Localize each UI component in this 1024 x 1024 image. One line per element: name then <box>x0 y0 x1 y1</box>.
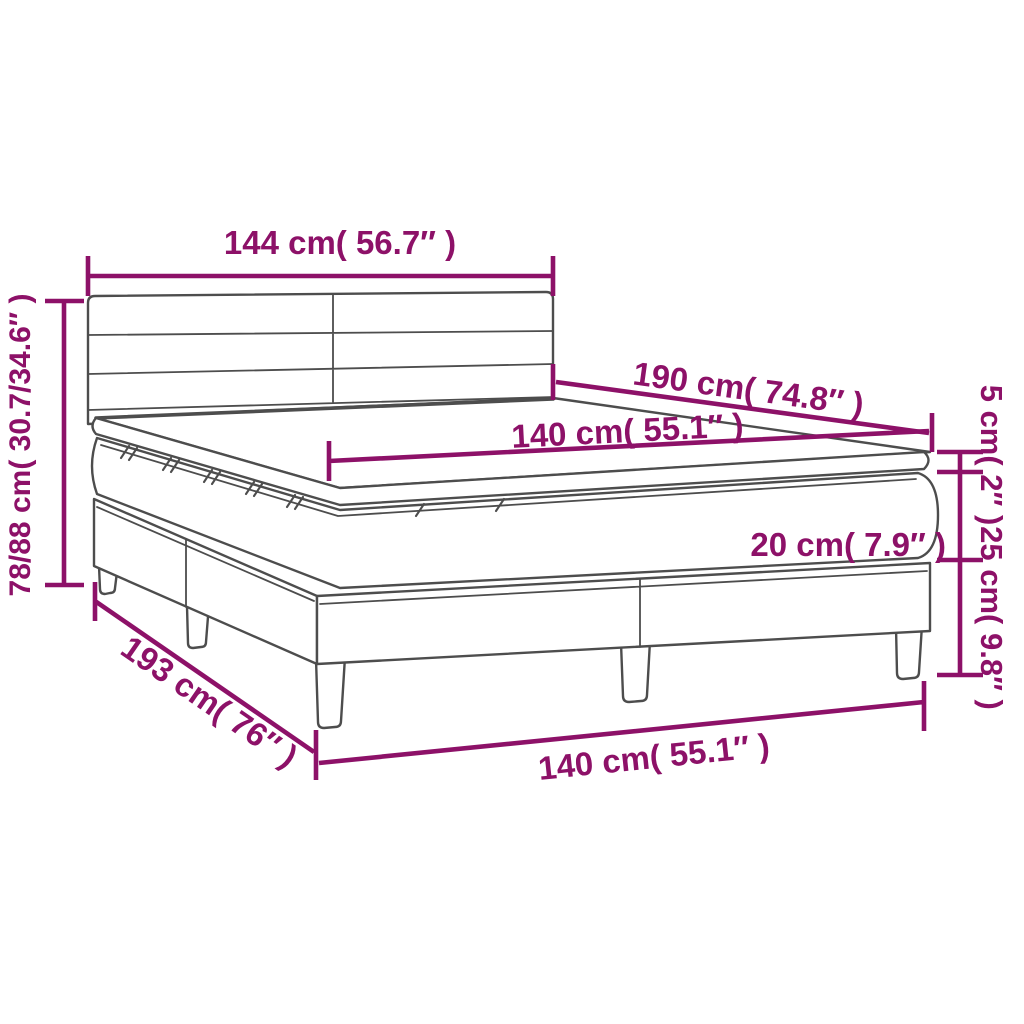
dimension-label-base-height: 25 cm( 9.8″ ) <box>974 526 1009 710</box>
dimension-label-total-height: 78/88 cm( 30.7/34.6″ ) <box>4 294 37 597</box>
dimension-mattress-height: 20 cm( 7.9″ ) <box>750 526 946 563</box>
dimension-label-topper-height: 5 cm( 2″ ) <box>974 385 1009 526</box>
dimension-label-headboard-width: 144 cm( 56.7″ ) <box>224 224 456 261</box>
dimension-label-mattress-height: 20 cm( 7.9″ ) <box>750 526 946 563</box>
dimension-line <box>45 301 84 585</box>
bed-leg <box>621 641 650 702</box>
dimension-headboard-width: 144 cm( 56.7″ ) <box>88 224 553 296</box>
bed-leg <box>316 657 345 728</box>
dimension-total-height: 78/88 cm( 30.7/34.6″ ) <box>4 294 84 597</box>
dimension-label-base-length: 193 cm( 76″ ) <box>115 628 305 774</box>
dimension-height-column: 5 cm( 2″ ) 25 cm( 9.8″ ) <box>937 385 1009 710</box>
dimension-base-width: 140 cm( 55.1″ ) <box>319 681 924 787</box>
diagram-canvas: 144 cm( 56.7″ ) 78/88 cm( 30.7/34.6″ ) 1… <box>0 0 1024 1024</box>
bed-dimension-diagram: 144 cm( 56.7″ ) 78/88 cm( 30.7/34.6″ ) 1… <box>0 0 1024 1024</box>
dimension-line <box>88 256 553 296</box>
